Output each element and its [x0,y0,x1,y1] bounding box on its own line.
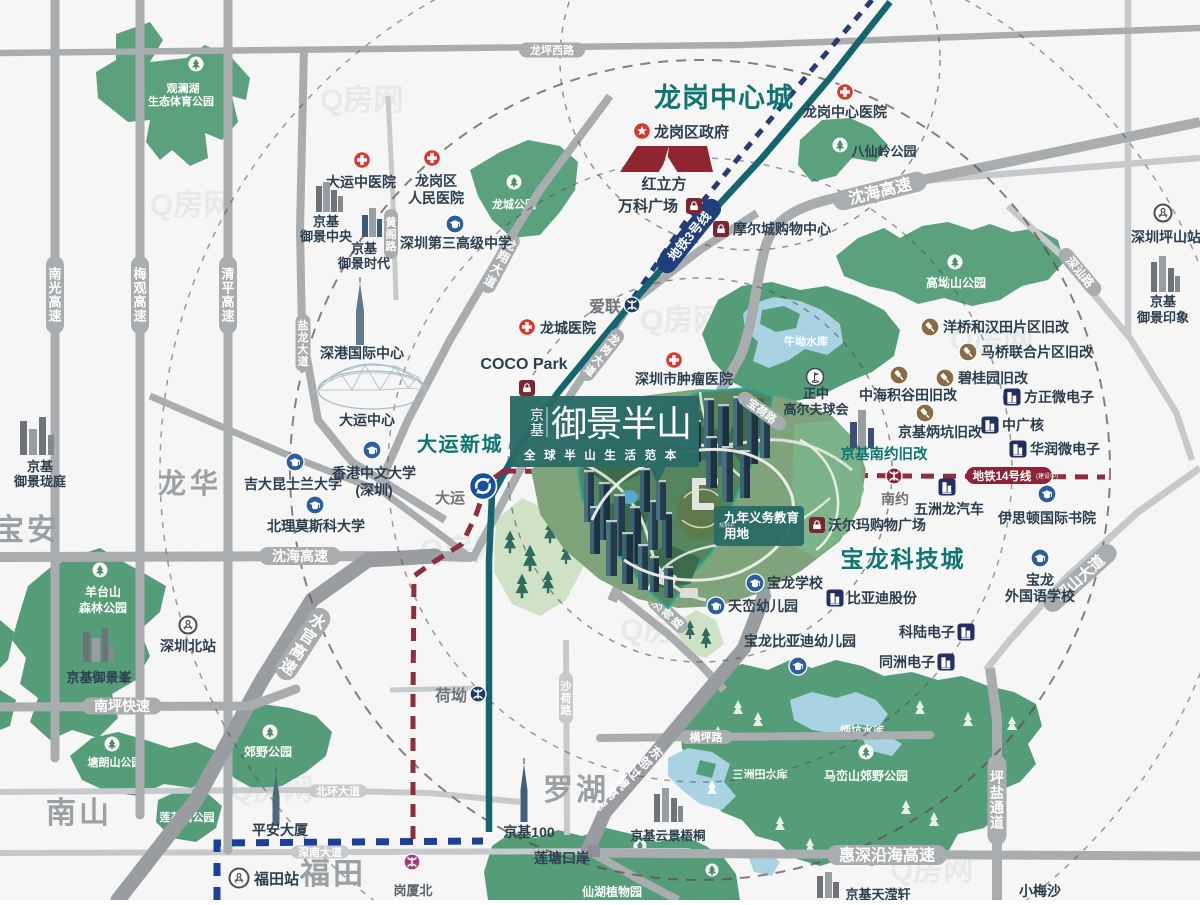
svg-text:全球半山生活范本: 全球半山生活范本 [523,448,685,462]
svg-text:阁: 阁 [386,227,397,241]
svg-text:深港国际中心: 深港国际中心 [320,345,404,361]
svg-text:御景珑庭: 御景珑庭 [13,474,67,489]
svg-text:速: 速 [48,309,61,324]
svg-text:南坪快速: 南坪快速 [94,698,150,714]
svg-text:牛坳水库: 牛坳水库 [784,334,828,348]
svg-text:大: 大 [298,342,309,356]
svg-text:北环大道: 北环大道 [316,784,360,798]
svg-text:科陆电子: 科陆电子 [899,624,955,640]
svg-text:龙城医院: 龙城医院 [539,320,596,336]
svg-text:吉大昆士兰大学: 吉大昆士兰大学 [244,476,342,492]
svg-text:通: 通 [990,799,1004,815]
svg-text:(建设中): (建设中) [1036,472,1058,480]
svg-text:深圳第三高级中学: 深圳第三高级中学 [400,235,512,251]
svg-text:马峦山郊野公园: 马峦山郊野公园 [824,768,908,783]
svg-text:龙岗中心城: 龙岗中心城 [654,83,794,113]
svg-text:平安大厦: 平安大厦 [252,822,309,838]
svg-text:碧桂园旧改: 碧桂园旧改 [957,370,1029,386]
svg-text:盐: 盐 [990,784,1004,800]
svg-text:COCO Park: COCO Park [480,356,567,373]
svg-text:宝安: 宝安 [0,513,60,547]
svg-text:小梅沙: 小梅沙 [1019,883,1061,899]
svg-text:龙岗中心医院: 龙岗中心医院 [802,104,887,120]
svg-text:御景中央: 御景中央 [299,229,353,244]
svg-text:京基云景梧桐: 京基云景梧桐 [630,828,705,843]
svg-text:盐: 盐 [298,318,309,332]
svg-text:光: 光 [47,281,61,296]
svg-text:比亚迪股份: 比亚迪股份 [847,590,918,606]
svg-text:高: 高 [221,295,234,310]
svg-text:人民医院: 人民医院 [408,190,464,206]
svg-text:宝龙科技城: 宝龙科技城 [841,546,966,572]
svg-text:香港中文大学: 香港中文大学 [331,465,416,481]
svg-text:宝龙学校: 宝龙学校 [767,575,824,591]
svg-text:南约: 南约 [881,491,909,507]
svg-text:高坳山公园: 高坳山公园 [926,275,986,290]
svg-text:京基天滢轩: 京基天滢轩 [845,887,910,900]
svg-text:福田: 福田 [299,858,366,891]
svg-text:正中: 正中 [803,386,829,401]
svg-text:龙岗区政府: 龙岗区政府 [653,123,729,141]
svg-text:御景半山: 御景半山 [551,403,691,444]
svg-text:京: 京 [530,407,544,423]
svg-text:塘朗山公园: 塘朗山公园 [88,755,143,769]
svg-text:荷: 荷 [560,691,572,705]
svg-text:中海积谷田旧改: 中海积谷田旧改 [859,387,958,403]
svg-text:地铁14号线: 地铁14号线 [973,469,1032,483]
svg-text:深圳市肿瘤医院: 深圳市肿瘤医院 [635,371,733,387]
svg-text:黄: 黄 [386,215,397,229]
svg-text:Q房网: Q房网 [150,189,233,222]
svg-text:仙湖植物园: 仙湖植物园 [582,884,642,899]
svg-text:深南大道: 深南大道 [298,845,342,859]
svg-text:速: 速 [221,309,234,324]
svg-text:大运中医院: 大运中医院 [326,174,396,190]
svg-text:宝龙比亚迪幼儿园: 宝龙比亚迪幼儿园 [744,633,856,649]
svg-text:北理莫斯科大学: 北理莫斯科大学 [267,518,365,534]
svg-text:森林公园: 森林公园 [79,600,127,615]
svg-text:高: 高 [48,295,61,310]
svg-text:规划中: 规划中 [719,522,734,529]
svg-text:红立方: 红立方 [641,175,686,193]
svg-text:伊思顿国际书院: 伊思顿国际书院 [997,510,1096,526]
svg-text:沈海高速: 沈海高速 [272,548,328,564]
svg-text:龙坪西路: 龙坪西路 [529,43,575,57]
svg-text:(深圳): (深圳) [355,482,392,498]
svg-text:宝龙: 宝龙 [1026,572,1054,588]
svg-text:速: 速 [133,309,146,324]
svg-text:南: 南 [48,267,61,282]
svg-text:同洲电子: 同洲电子 [879,654,935,670]
svg-text:外国语学校: 外国语学校 [1005,588,1076,604]
svg-text:岗厦北: 岗厦北 [393,883,432,898]
svg-text:龙: 龙 [297,330,309,344]
svg-text:高: 高 [133,295,146,310]
svg-text:御景时代: 御景时代 [337,256,390,271]
svg-text:万科广场: 万科广场 [617,197,678,215]
svg-text:观澜湖: 观澜湖 [167,81,200,95]
svg-text:沙: 沙 [561,680,572,693]
svg-text:三洲田水库: 三洲田水库 [733,767,788,781]
svg-text:梅: 梅 [133,267,146,282]
svg-text:京基: 京基 [1150,294,1177,309]
svg-text:京基: 京基 [313,214,340,229]
svg-text:五洲龙汽车: 五洲龙汽车 [914,501,984,517]
svg-text:惠深沿海高速: 惠深沿海高速 [839,846,935,865]
svg-text:莲塘口岸: 莲塘口岸 [534,850,590,866]
svg-text:南山: 南山 [46,797,112,830]
svg-text:御景印象: 御景印象 [1136,310,1189,325]
svg-text:九年义务教育: 九年义务教育 [723,510,800,525]
svg-text:基: 基 [530,422,544,438]
svg-text:大运中心: 大运中心 [339,412,395,428]
svg-text:马桥联合片区旧改: 马桥联合片区旧改 [981,344,1094,360]
svg-text:深圳北站: 深圳北站 [160,638,216,654]
svg-text:观: 观 [133,281,146,296]
svg-text:爱联: 爱联 [589,297,621,316]
svg-text:京基100: 京基100 [503,824,555,840]
svg-text:郊野公园: 郊野公园 [244,744,292,759]
svg-text:福田站: 福田站 [253,870,299,888]
svg-text:龙岗区: 龙岗区 [414,173,457,189]
svg-text:横坪路: 横坪路 [690,730,724,744]
svg-text:路: 路 [561,703,573,717]
svg-text:道: 道 [990,814,1004,830]
svg-text:摩尔城购物中心: 摩尔城购物中心 [733,221,831,237]
svg-text:龙华: 龙华 [158,467,222,499]
svg-text:八仙岭公园: 八仙岭公园 [850,144,916,159]
svg-text:荷坳: 荷坳 [435,686,467,705]
svg-text:大运: 大运 [435,489,465,507]
svg-text:清: 清 [221,267,234,282]
svg-text:道: 道 [298,354,309,368]
svg-text:天峦幼儿园: 天峦幼儿园 [728,598,798,614]
svg-text:平: 平 [221,281,234,296]
svg-text:沃尔玛购物广场: 沃尔玛购物广场 [828,517,926,533]
svg-text:京基: 京基 [27,459,54,474]
svg-text:京基御景峯: 京基御景峯 [66,670,132,685]
svg-text:华润微电子: 华润微电子 [1030,441,1100,457]
svg-text:京基南约旧改: 京基南约旧改 [841,445,928,463]
svg-text:高尔夫球会: 高尔夫球会 [783,402,849,417]
svg-text:京基炳坑旧改: 京基炳坑旧改 [898,424,983,440]
svg-text:罗湖: 罗湖 [543,774,609,807]
svg-text:路: 路 [386,239,398,253]
svg-text:生态体育公园: 生态体育公园 [148,94,214,108]
svg-text:中广核: 中广核 [1002,417,1044,433]
svg-text:京基: 京基 [351,241,378,256]
svg-text:洋桥和汉田片区旧改: 洋桥和汉田片区旧改 [943,319,1070,335]
svg-text:坪: 坪 [990,769,1004,785]
svg-text:大运新城: 大运新城 [417,432,503,456]
svg-text:深圳坪山站: 深圳坪山站 [1131,229,1200,245]
svg-text:羊台山: 羊台山 [85,584,121,599]
svg-text:方正微电子: 方正微电子 [1024,389,1094,405]
